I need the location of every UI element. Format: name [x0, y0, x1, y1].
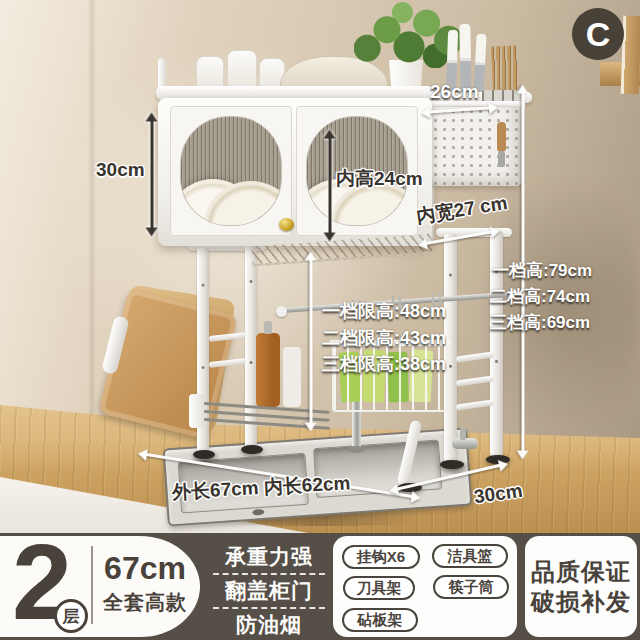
soap-bottle [256, 333, 280, 407]
faucet-base [347, 446, 365, 453]
accessory-pill: 刀具架 [343, 576, 415, 600]
set-height-label: 全套高款 [92, 589, 198, 616]
set-height: 67cm [94, 550, 196, 587]
feature-divider [213, 607, 325, 609]
guarantee-line: 品质保证 [531, 560, 631, 584]
dim-arrow-cabinet-height [151, 115, 154, 235]
label-tier-height-2: 二档高:74cm [490, 288, 590, 307]
feature-item: 翻盖柜门 [225, 577, 313, 605]
accessory-panel: 挂钩X6 洁具篮 刀具架 筷子筒 砧板架 [333, 536, 517, 637]
ribbed-glass-window [180, 116, 282, 226]
accessory-pill: 挂钩X6 [342, 545, 420, 569]
guarantee-panel: 品质保证 破损补发 [525, 536, 637, 637]
accessory-pill: 洁具篮 [432, 544, 508, 568]
left-front-foot [193, 450, 215, 459]
hook-bar-endcap [276, 306, 287, 317]
feature-divider [213, 573, 325, 575]
peeler-blade [498, 151, 505, 167]
accessory-pill: 筷子筒 [433, 575, 509, 599]
chopsticks [491, 45, 519, 94]
wood-frame-edge [621, 16, 640, 95]
label-limit-height-2: 二档限高:43cm [322, 329, 446, 349]
label-cabinet-height: 30cm [96, 160, 145, 181]
tier-unit-circle: 层 [54, 599, 88, 633]
accessory-pill: 砧板架 [342, 608, 418, 632]
label-limit-height-1: 一档限高:48cm [322, 302, 446, 322]
label-inner-height: 内高24cm [336, 169, 423, 190]
product-card: 30cm 26cm 内高24cm 内宽27 cm 一档限高:48cm 二档限高:… [0, 0, 640, 640]
label-limit-height-3: 三档限高:38cm [322, 355, 446, 375]
info-banner: 2 层 67cm 全套高款 承重力强 翻盖柜门 防油烟 挂钩X6 洁具篮 刀具架… [0, 533, 640, 640]
lotion-bottle [283, 347, 301, 407]
wall-corner [88, 0, 96, 440]
knife-basket [430, 106, 522, 186]
right-front-foot [440, 460, 464, 469]
product-photo: 30cm 26cm 内高24cm 内宽27 cm 一档限高:48cm 二档限高:… [0, 0, 640, 533]
dim-arrow-inner-height [329, 132, 332, 240]
peeler-handle [497, 122, 506, 152]
cabinet-door-left [170, 106, 292, 236]
variant-badge: C [572, 8, 624, 60]
label-tier-height-1: 一档高:79cm [492, 262, 592, 281]
label-tier-height-3: 三档高:69cm [490, 314, 590, 333]
guarantee-line: 破损补发 [531, 590, 631, 614]
feature-item: 承重力强 [225, 543, 313, 571]
label-top-depth: 26cm [430, 82, 479, 103]
left-back-foot [241, 445, 263, 454]
feature-list: 承重力强 翻盖柜门 防油烟 [208, 543, 330, 639]
gold-knob [279, 218, 294, 231]
dim-arrow-limit-height [310, 254, 313, 430]
feature-item: 防油烟 [236, 611, 302, 639]
soap-dispenser-spout [460, 427, 466, 440]
